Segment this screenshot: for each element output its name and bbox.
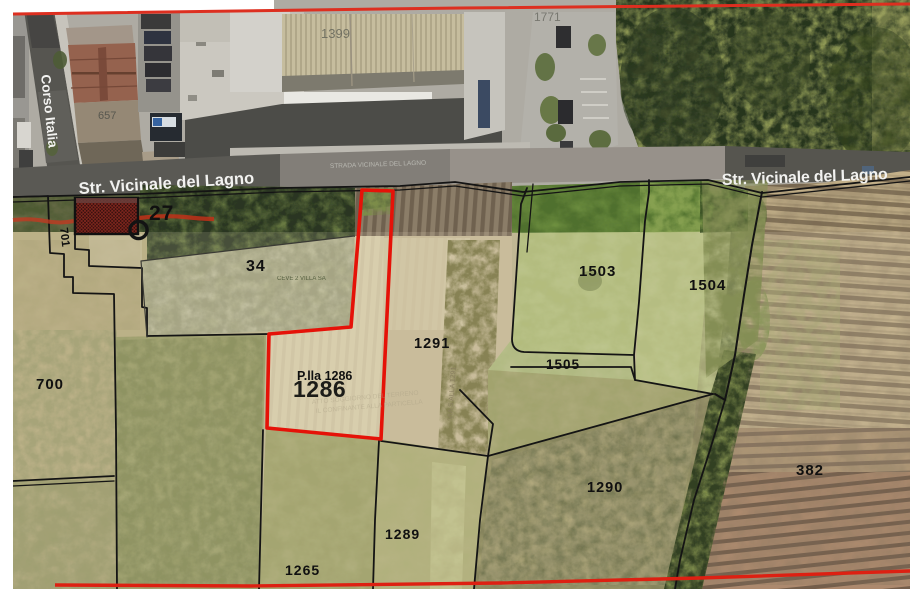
svg-text:1771: 1771 (534, 10, 561, 24)
svg-text:1505: 1505 (546, 357, 580, 372)
svg-text:1504: 1504 (689, 277, 726, 294)
svg-text:700: 700 (36, 376, 64, 393)
svg-text:CEVE 2 VILLA SA: CEVE 2 VILLA SA (277, 276, 326, 282)
svg-text:1265: 1265 (285, 562, 320, 578)
svg-text:701: 701 (57, 227, 71, 248)
svg-text:382: 382 (796, 462, 824, 479)
svg-text:1289: 1289 (385, 526, 420, 542)
svg-text:27: 27 (149, 202, 174, 225)
svg-text:1290: 1290 (587, 480, 623, 496)
svg-text:1399: 1399 (321, 26, 350, 41)
svg-text:657: 657 (98, 110, 116, 122)
svg-text:34: 34 (246, 258, 266, 275)
svg-text:1503: 1503 (579, 263, 616, 280)
svg-text:1291: 1291 (414, 336, 450, 352)
